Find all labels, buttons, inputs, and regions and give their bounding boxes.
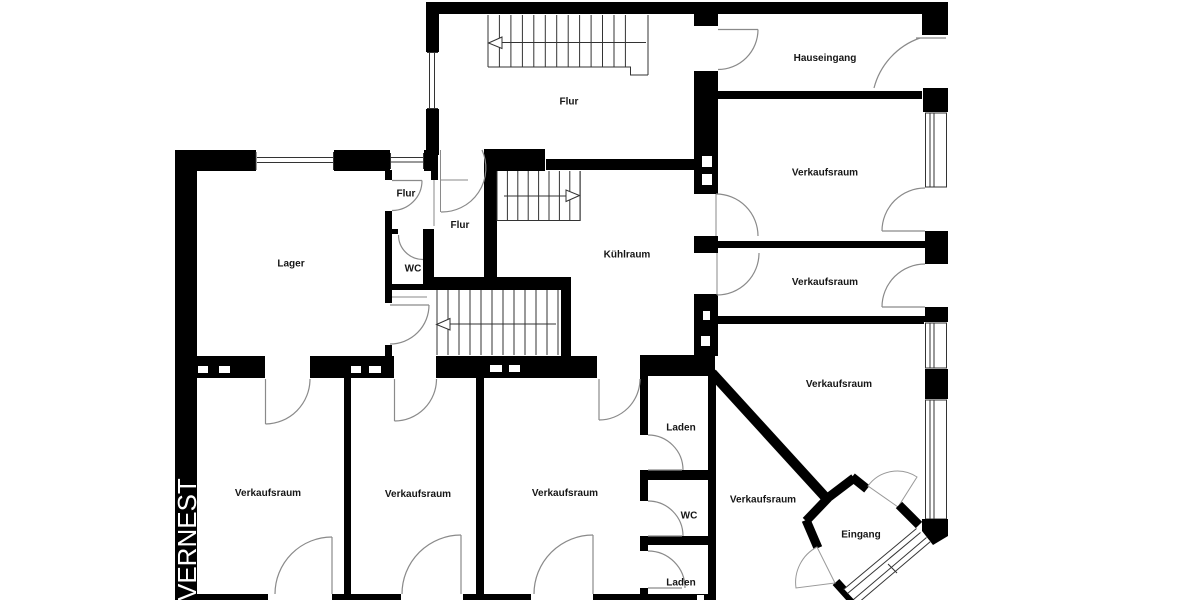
svg-text:Flur: Flur	[397, 189, 416, 200]
svg-text:Eingang: Eingang	[841, 530, 880, 541]
svg-text:VERNEST: VERNEST	[172, 478, 202, 600]
svg-text:Flur: Flur	[560, 97, 579, 108]
svg-text:Verkaufsraum: Verkaufsraum	[235, 488, 301, 499]
svg-text:Verkaufsraum: Verkaufsraum	[532, 488, 598, 499]
svg-text:Kühlraum: Kühlraum	[604, 250, 651, 261]
svg-text:Verkaufsraum: Verkaufsraum	[730, 495, 796, 506]
svg-text:WC: WC	[681, 511, 698, 522]
svg-text:Lager: Lager	[277, 259, 304, 270]
svg-text:Hauseingang: Hauseingang	[794, 53, 857, 64]
svg-text:Verkaufsraum: Verkaufsraum	[806, 379, 872, 390]
svg-text:Verkaufsraum: Verkaufsraum	[792, 277, 858, 288]
svg-text:Laden: Laden	[666, 423, 695, 434]
svg-text:Verkaufsraum: Verkaufsraum	[792, 168, 858, 179]
svg-text:Verkaufsraum: Verkaufsraum	[385, 489, 451, 500]
svg-text:Laden: Laden	[666, 578, 695, 589]
svg-text:Flur: Flur	[451, 220, 470, 231]
svg-text:WC: WC	[405, 264, 422, 275]
